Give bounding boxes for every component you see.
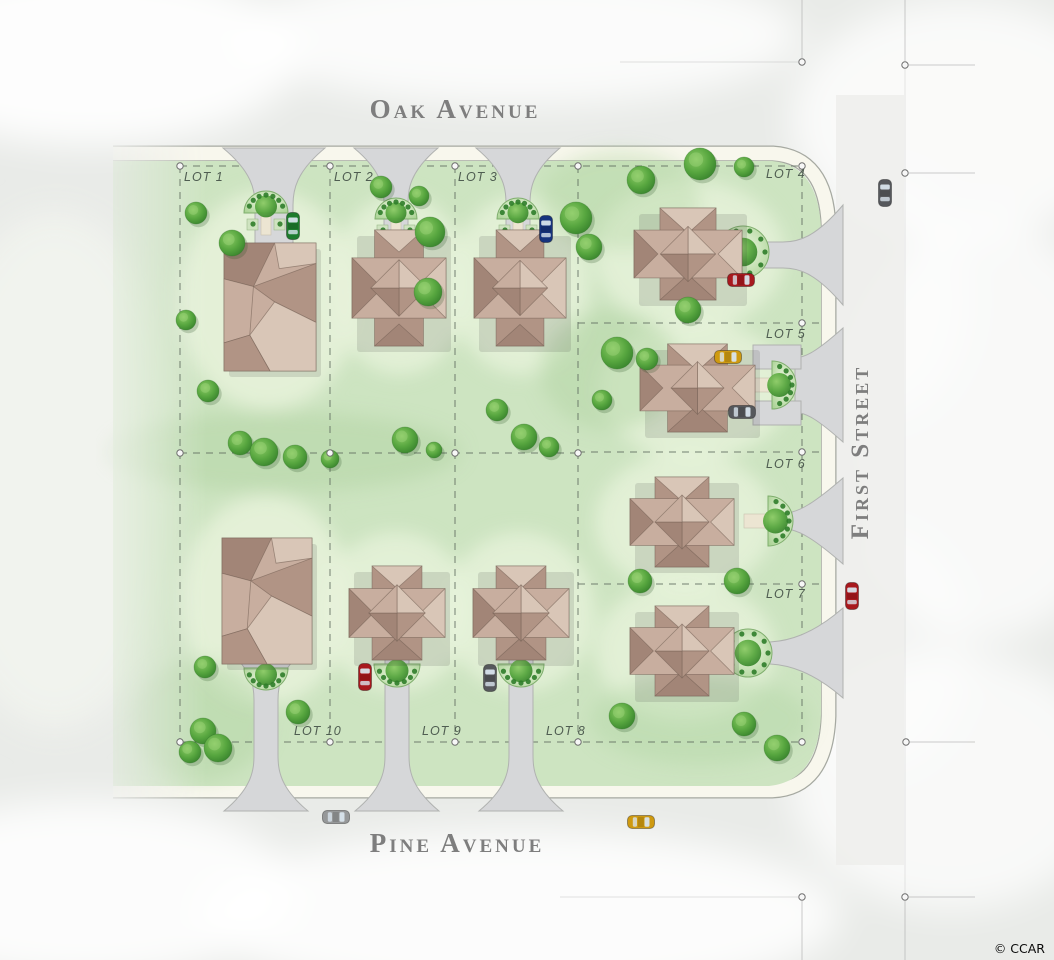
shrub-dot [739, 669, 744, 674]
shrub-dot [402, 679, 407, 684]
survey-pin [799, 59, 805, 65]
survey-pin [575, 739, 581, 745]
parked-car [729, 406, 756, 419]
shrub-dot [773, 538, 778, 543]
tree-highlight [200, 383, 210, 393]
tree-highlight [565, 206, 579, 220]
survey-pin [902, 894, 908, 900]
lot-label: LOT 8 [546, 724, 586, 738]
tree-highlight [290, 703, 301, 714]
survey-pin [177, 163, 183, 169]
tree-highlight [428, 444, 435, 451]
tree-highlight [580, 238, 592, 250]
shrub-dot [752, 631, 757, 636]
shrub-dot [786, 518, 791, 523]
shrub-dot [412, 669, 417, 674]
shrub-dot [518, 680, 523, 685]
tree-highlight [679, 301, 691, 313]
parked-car [728, 274, 755, 287]
car-windshield [645, 817, 650, 827]
shrub-dot [270, 682, 275, 687]
shrub-dot [251, 198, 256, 203]
lot-label: LOT 5 [766, 327, 806, 341]
tree-highlight [768, 739, 780, 751]
site-plan-map: LOT 1LOT 2LOT 3LOT 4LOT 5LOT 6LOT 7LOT 8… [0, 0, 1054, 960]
shrub-dot [247, 672, 252, 677]
roof-facet [224, 279, 253, 343]
parked-car [359, 664, 372, 691]
tree-highlight [542, 440, 551, 449]
car-rear-window [360, 681, 370, 685]
tree-highlight [223, 234, 235, 246]
shrub-dot [747, 228, 752, 233]
shrub-dot [765, 650, 770, 655]
car-rear-window [720, 352, 724, 362]
tree-highlight [639, 351, 649, 361]
shrub-dot [377, 669, 382, 674]
car-windshield [288, 218, 298, 223]
survey-pin [799, 449, 805, 455]
shrub-dot [784, 368, 789, 373]
tree-highlight [728, 572, 740, 584]
car-roof [333, 812, 339, 822]
garden-tree [763, 509, 788, 534]
house-lot-1 [224, 243, 321, 377]
parked-car [846, 583, 859, 610]
tree-highlight [420, 221, 434, 235]
tree-highlight [194, 722, 206, 734]
car-rear-window [880, 197, 890, 201]
car-rear-window [734, 407, 738, 417]
car-roof [485, 675, 495, 681]
house-lot-6 [630, 477, 739, 573]
lot-label: LOT 3 [458, 170, 498, 184]
survey-pin [902, 170, 908, 176]
shrub-dot [247, 204, 252, 209]
tree-highlight [254, 442, 267, 455]
shrub-dot [758, 236, 763, 241]
shrub-dot [515, 199, 520, 204]
tree-highlight [232, 434, 243, 445]
car-windshield [847, 588, 857, 593]
shrub-dot [777, 401, 782, 406]
house-lot-3 [474, 230, 571, 352]
shrub-dot [280, 204, 285, 209]
tree-highlight [373, 179, 383, 189]
tree-highlight [412, 189, 421, 198]
shrub-dot [270, 194, 275, 199]
tree-highlight [631, 170, 644, 183]
car-roof [738, 275, 744, 285]
shrub-dot [263, 192, 268, 197]
shrub-dot [409, 210, 414, 215]
shrub-dot [277, 221, 282, 226]
shrub-dot [503, 204, 508, 209]
shrub-dot [777, 364, 782, 369]
shrub-dot [785, 526, 790, 531]
lot-label: LOT 2 [334, 170, 374, 184]
shrub-dot [773, 499, 778, 504]
lot-label: LOT 6 [766, 457, 806, 471]
house-lot-4 [634, 208, 747, 306]
tree-highlight [737, 160, 746, 169]
shrub-dot [522, 201, 527, 206]
shrub-dot [784, 397, 789, 402]
car-windshield [732, 352, 737, 362]
car-windshield [746, 407, 751, 417]
tree-highlight [736, 715, 747, 726]
shrub-dot [501, 669, 506, 674]
car-windshield [485, 670, 495, 675]
tree-highlight [595, 393, 604, 402]
pine-avenue-label: Pine Avenue [370, 828, 545, 858]
car-rear-window [328, 812, 332, 822]
shrub-dot [526, 679, 531, 684]
tree-highlight [613, 707, 625, 719]
tree-highlight [287, 448, 298, 459]
shrub-dot [511, 679, 516, 684]
oak-avenue-label: Oak Avenue [370, 94, 541, 124]
garden-tree [767, 373, 791, 397]
shrub-dot [780, 533, 785, 538]
shrub-dot [280, 672, 285, 677]
tree-highlight [197, 659, 207, 669]
shrub-dot [509, 201, 514, 206]
tree-highlight [208, 738, 221, 751]
shrub-dot [789, 382, 794, 387]
car-roof [541, 226, 551, 232]
parked-car [628, 816, 655, 829]
first-street-label: First Street [847, 365, 874, 539]
house-lot-8 [473, 566, 574, 666]
tree-highlight [418, 282, 431, 295]
parked-car [484, 665, 497, 692]
shrub-dot [785, 510, 790, 515]
roof-facet [222, 573, 251, 636]
shrub-dot [500, 210, 505, 215]
survey-pin [327, 739, 333, 745]
car-windshield [880, 185, 890, 190]
lot-label: LOT 10 [294, 724, 342, 738]
shrub-dot [408, 675, 413, 680]
car-windshield [541, 221, 551, 226]
shrub-dot [381, 675, 386, 680]
tree-highlight [396, 431, 408, 443]
shrub-dot [752, 669, 757, 674]
shrub-dot [405, 204, 410, 209]
shrub-dot [400, 201, 405, 206]
shrub-dot [788, 390, 793, 395]
shrub-dot [762, 249, 767, 254]
shrub-dot [780, 504, 785, 509]
lot-label: LOT 7 [766, 587, 806, 601]
shrub-dot [532, 675, 537, 680]
shrub-dot [263, 683, 268, 688]
lot-label: LOT 9 [422, 724, 462, 738]
car-roof [638, 817, 644, 827]
survey-pin [452, 163, 458, 169]
shrub-dot [387, 679, 392, 684]
car-rear-window [733, 275, 737, 285]
shrub-dot [257, 682, 262, 687]
credit-label: © CCAR [994, 941, 1045, 956]
shrub-dot [250, 221, 255, 226]
car-roof [847, 593, 857, 599]
shrub-dot [378, 210, 383, 215]
lot-label: LOT 4 [766, 167, 806, 181]
parked-car [287, 213, 300, 240]
house-lot-10 [222, 538, 317, 670]
tree-highlight [632, 572, 643, 583]
tree-highlight [182, 744, 192, 754]
tree-highlight [515, 428, 527, 440]
tree-highlight [606, 341, 620, 355]
tree-highlight [489, 402, 499, 412]
survey-pin [799, 739, 805, 745]
car-rear-window [541, 233, 551, 237]
tree-highlight [179, 313, 188, 322]
survey-pin [452, 450, 458, 456]
survey-pin [177, 739, 183, 745]
survey-pin [903, 739, 909, 745]
shrub-dot [381, 204, 386, 209]
car-rear-window [485, 682, 495, 686]
shrub-dot [276, 678, 281, 683]
car-rear-window [847, 600, 857, 604]
car-rear-window [633, 817, 637, 827]
survey-pin [177, 450, 183, 456]
survey-pin [575, 163, 581, 169]
car-windshield [745, 275, 750, 285]
shrub-dot [393, 199, 398, 204]
tree-highlight [689, 152, 703, 166]
car-rear-window [288, 230, 298, 234]
car-roof [739, 407, 745, 417]
car-roof [288, 223, 298, 229]
lot-label: LOT 1 [184, 170, 224, 184]
shrub-dot [536, 669, 541, 674]
survey-pin [902, 62, 908, 68]
shrub-dot [394, 680, 399, 685]
tree-highlight [188, 205, 198, 215]
site-plan-page: LOT 1LOT 2LOT 3LOT 4LOT 5LOT 6LOT 7LOT 8… [0, 0, 1054, 960]
house-lot-9 [349, 566, 450, 666]
survey-pin [327, 450, 333, 456]
parked-car [323, 811, 350, 824]
survey-pin [799, 320, 805, 326]
shrub-dot [257, 194, 262, 199]
parked-car [540, 216, 553, 243]
shrub-dot [276, 198, 281, 203]
shrub-dot [762, 662, 767, 667]
shrub-dot [762, 639, 767, 644]
house-lot-7 [630, 606, 739, 702]
car-roof [880, 190, 890, 196]
survey-pin [799, 894, 805, 900]
parked-car [715, 351, 742, 364]
car-roof [725, 352, 731, 362]
shrub-dot [387, 201, 392, 206]
survey-pin [575, 450, 581, 456]
shrub-dot [527, 204, 532, 209]
survey-pin [327, 163, 333, 169]
shrub-dot [531, 210, 536, 215]
car-windshield [340, 812, 345, 822]
car-roof [360, 674, 370, 680]
car-windshield [360, 669, 370, 674]
shrub-dot [739, 631, 744, 636]
shrub-dot [505, 675, 510, 680]
parked-car [879, 180, 892, 207]
shrub-dot [758, 262, 763, 267]
survey-pin [452, 739, 458, 745]
garden-bed [244, 191, 288, 235]
shrub-dot [251, 678, 256, 683]
shrub-dot [788, 375, 793, 380]
